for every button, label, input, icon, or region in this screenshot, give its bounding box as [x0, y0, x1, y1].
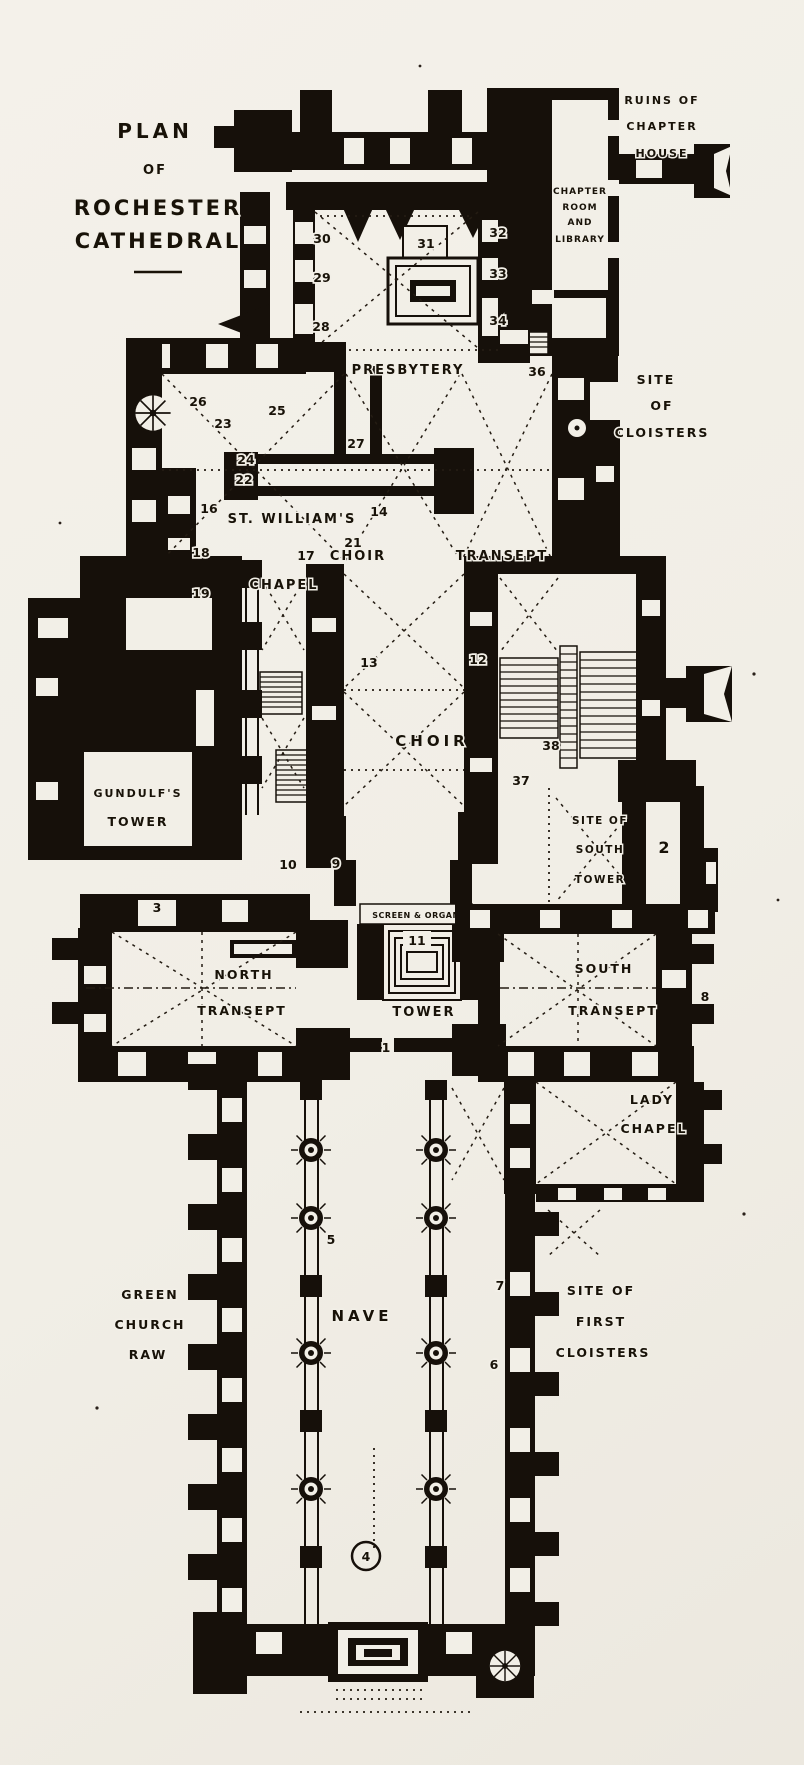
marker-8: 8 [701, 989, 710, 1004]
label-choir-transept-choir: CHOIR [330, 549, 386, 564]
svg-text:CHURCH: CHURCH [114, 1317, 185, 1332]
svg-text:SITE: SITE [637, 372, 676, 387]
label-site-of-south-tower: SITE OF SOUTH TOWER [572, 815, 628, 886]
svg-text:ROOM: ROOM [562, 203, 597, 213]
marker-27: 27 [347, 436, 364, 451]
svg-text:NORTH: NORTH [214, 967, 273, 982]
label-choir: CHOIR [395, 732, 468, 750]
title-line-rochester: ROCHESTER [74, 196, 242, 220]
marker-5: 5 [327, 1232, 336, 1247]
marker-16: 16 [200, 501, 218, 516]
svg-text:TRANSEPT: TRANSEPT [568, 1003, 658, 1018]
marker-36: 36 [528, 364, 546, 379]
cathedral-plan-plate: SCREEN & ORGAN [0, 0, 804, 1765]
svg-text:TOWER: TOWER [575, 874, 625, 886]
label-site-of-first-cloisters: SITE OF FIRST CLOISTERS [556, 1283, 651, 1360]
south-transept-walls [455, 904, 715, 1082]
marker-18: 18 [192, 545, 209, 560]
nave-south-arcade-columns [416, 1136, 456, 1569]
svg-text:HOUSE: HOUSE [636, 147, 689, 160]
marker-22: 22 [235, 472, 252, 487]
svg-text:LADY: LADY [630, 1092, 674, 1107]
marker-4: 4 [362, 1549, 371, 1564]
svg-text:CHAPTER: CHAPTER [626, 120, 697, 133]
svg-text:AND: AND [568, 218, 593, 228]
marker-37: 37 [512, 773, 529, 788]
label-nave: NAVE [332, 1307, 393, 1325]
marker-29: 29 [313, 270, 330, 285]
label-south-transept: SOUTH TRANSEPT [568, 961, 658, 1018]
marker-9: 9 [332, 856, 341, 871]
marker-31: 31 [417, 236, 434, 251]
marker-30: 30 [313, 231, 331, 246]
cathedral-plan-drawing: SCREEN & ORGAN [0, 0, 804, 1765]
label-screen-and-organ: SCREEN & ORGAN [372, 911, 459, 920]
svg-text:GREEN: GREEN [121, 1287, 178, 1302]
label-tower: TOWER [392, 1005, 455, 1020]
marker-3: 3 [153, 900, 162, 915]
svg-text:CHAPEL: CHAPEL [621, 1121, 688, 1136]
svg-text:LIBRARY: LIBRARY [555, 235, 605, 245]
marker-1: 1 [382, 1040, 391, 1055]
label-green-church: GREEN CHURCH RAW [114, 1287, 185, 1362]
svg-text:CHAPTER: CHAPTER [553, 187, 607, 197]
choir-vault-ribs [262, 574, 464, 806]
stairs-icon [580, 652, 638, 758]
svg-text:RAW: RAW [129, 1347, 168, 1362]
marker-25: 25 [268, 403, 285, 418]
spiral-stair-icon [490, 1651, 520, 1681]
stairs-icon [500, 658, 558, 738]
nave-north-arcade-columns [291, 1136, 331, 1569]
marker-13: 13 [360, 655, 377, 670]
marker-6: 6 [490, 1357, 499, 1372]
marker-23: 23 [214, 416, 231, 431]
presbytery-walls [218, 185, 530, 363]
svg-text:TOWER: TOWER [107, 814, 168, 829]
marker-17: 17 [297, 548, 314, 563]
label-ruins-of-chapter-house: RUINS OF CHAPTER HOUSE [624, 94, 699, 160]
label-site-of-cloisters: SITE OF CLOISTERS [615, 372, 710, 440]
marker-21: 21 [344, 535, 361, 550]
marker-19: 19 [192, 586, 209, 601]
title-line-of: OF [143, 163, 167, 178]
title-line-cathedral: CATHEDRAL [75, 229, 242, 253]
marker-28: 28 [312, 319, 329, 334]
marker-12: 12 [469, 652, 486, 667]
svg-text:CHAPEL: CHAPEL [249, 578, 318, 593]
ladder-stair-icon [560, 646, 577, 768]
label-north-transept: NORTH TRANSEPT [197, 967, 287, 1018]
svg-text:RUINS OF: RUINS OF [624, 94, 699, 107]
marker-10: 10 [279, 857, 297, 872]
svg-text:FIRST: FIRST [576, 1314, 626, 1329]
label-presbytery: PRESBYTERY [352, 363, 465, 378]
stairs-icon [260, 672, 302, 714]
svg-text:SOUTH: SOUTH [575, 961, 634, 976]
svg-text:SITE OF: SITE OF [567, 1283, 635, 1298]
svg-text:TRANSEPT: TRANSEPT [197, 1003, 287, 1018]
title-line-plan: PLAN [117, 119, 193, 143]
west-front-walls [193, 1612, 535, 1712]
crossing-walls [230, 812, 506, 1080]
choir-transept-vault-ribs [162, 374, 552, 560]
label-choir-transept-transept: TRANSEPT [456, 549, 548, 564]
marker-14: 14 [370, 504, 388, 519]
marker-38: 38 [542, 738, 559, 753]
site-of-south-tower-area [549, 786, 718, 912]
marker-2: 2 [658, 838, 669, 857]
marker-32: 32 [489, 225, 506, 240]
svg-text:ST. WILLIAM'S: ST. WILLIAM'S [228, 512, 357, 527]
svg-text:CLOISTERS: CLOISTERS [615, 425, 710, 440]
marker-34: 34 [489, 313, 507, 328]
svg-text:GUNDULF'S: GUNDULF'S [93, 787, 182, 800]
svg-text:OF: OF [650, 398, 673, 413]
svg-text:SOUTH: SOUTH [576, 844, 624, 856]
marker-26: 26 [189, 394, 207, 409]
marker-11: 11 [408, 933, 425, 948]
svg-text:SITE OF: SITE OF [572, 815, 628, 827]
marker-7: 7 [496, 1278, 505, 1293]
svg-text:CLOISTERS: CLOISTERS [556, 1345, 651, 1360]
marker-33: 33 [489, 266, 506, 281]
nave-walls [188, 1056, 559, 1642]
north-transept-walls [52, 894, 310, 1082]
marker-24: 24 [237, 452, 255, 467]
choir-walls [238, 556, 498, 816]
spiral-stair-icon [135, 395, 170, 430]
